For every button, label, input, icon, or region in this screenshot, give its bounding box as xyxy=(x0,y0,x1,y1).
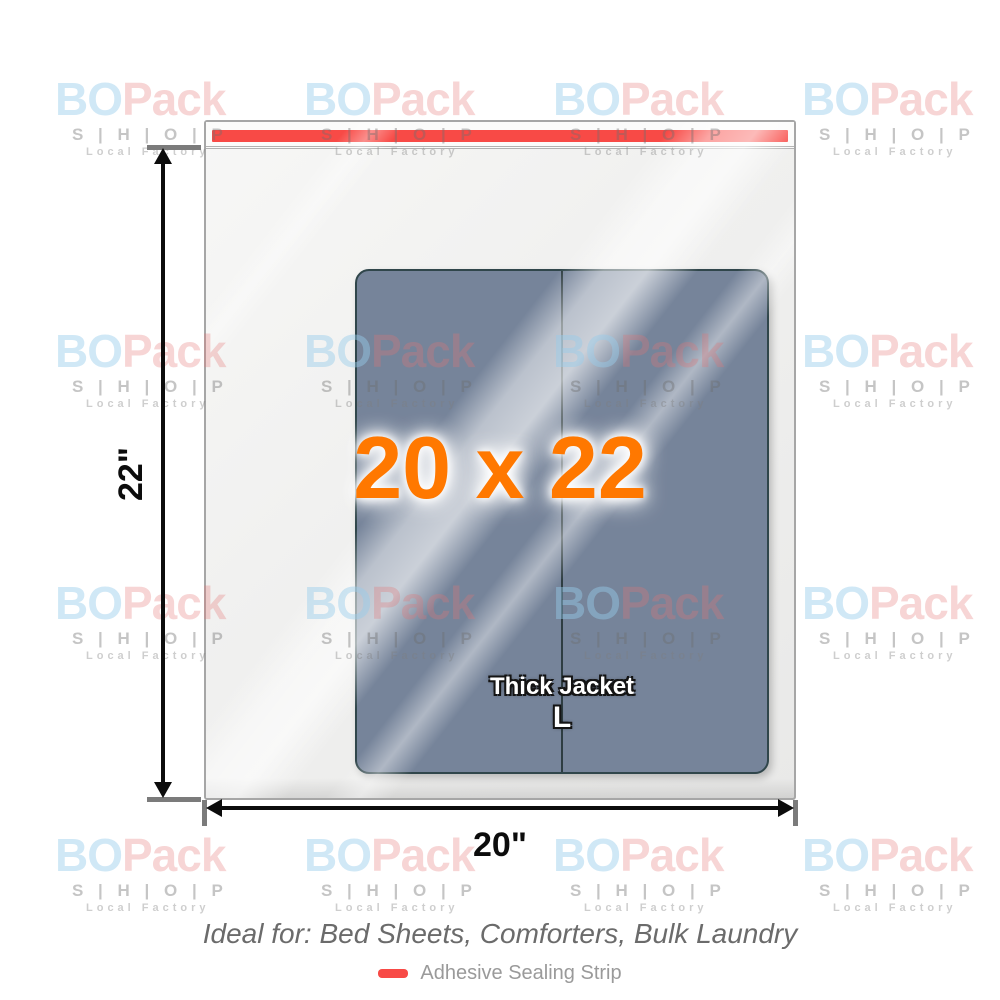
bag-size-text: 20 x 22 xyxy=(206,424,794,512)
watermark-brand-bo: BO xyxy=(55,325,122,377)
watermark-factory-line: Local Factory xyxy=(833,146,1000,158)
watermark-tile: BOPack S | H | O | P Local Factory xyxy=(802,328,1000,580)
watermark-brand-bo: BO xyxy=(55,73,122,125)
watermark-brand-pack: Pack xyxy=(869,577,972,629)
jacket-label-name: Thick Jacket xyxy=(357,673,767,701)
legend-row: Adhesive Sealing Strip xyxy=(0,962,1000,985)
watermark-brand: BOPack xyxy=(802,580,1000,626)
jacket-label-size: L xyxy=(357,701,767,736)
watermark-factory-line: Local Factory xyxy=(335,902,553,914)
watermark-brand-bo: BO xyxy=(304,73,371,125)
watermark-brand: BOPack xyxy=(553,76,802,122)
watermark-brand-pack: Pack xyxy=(122,73,225,125)
arrow-up-icon xyxy=(154,148,172,164)
watermark-brand: BOPack xyxy=(802,832,1000,878)
bag-flap xyxy=(206,122,794,149)
watermark-brand: BOPack xyxy=(55,832,304,878)
watermark-factory-line: Local Factory xyxy=(833,398,1000,410)
watermark-brand-pack: Pack xyxy=(869,829,972,881)
watermark-brand-bo: BO xyxy=(802,829,869,881)
watermark-brand-bo: BO xyxy=(55,829,122,881)
watermark-brand-pack: Pack xyxy=(122,829,225,881)
arrow-down-icon xyxy=(154,782,172,798)
watermark-brand: BOPack xyxy=(802,328,1000,374)
adhesive-sealing-strip xyxy=(212,130,788,142)
watermark-brand: BOPack xyxy=(802,76,1000,122)
watermark-shop-line: S | H | O | P xyxy=(819,629,1000,649)
legend-label: Adhesive Sealing Strip xyxy=(420,962,621,985)
ideal-for-text: Ideal for: Bed Sheets, Comforters, Bulk … xyxy=(0,918,1000,950)
watermark-brand: BOPack xyxy=(304,76,553,122)
watermark-factory-line: Local Factory xyxy=(86,902,304,914)
watermark-brand: BOPack xyxy=(55,76,304,122)
watermark-shop-line: S | H | O | P xyxy=(570,881,802,901)
watermark-brand-bo: BO xyxy=(802,577,869,629)
width-dimension-line xyxy=(221,806,779,810)
watermark-factory-line: Local Factory xyxy=(584,902,802,914)
watermark-brand-pack: Pack xyxy=(620,829,723,881)
watermark-shop-line: S | H | O | P xyxy=(819,377,1000,397)
watermark-brand-bo: BO xyxy=(553,73,620,125)
red-strip-swatch-icon xyxy=(378,969,408,978)
width-dimension-label: 20" xyxy=(400,826,600,865)
jacket-label: Thick Jacket L xyxy=(357,673,767,735)
watermark-shop-line: S | H | O | P xyxy=(819,125,1000,145)
watermark-tile: BOPack S | H | O | P Local Factory xyxy=(802,580,1000,832)
watermark-shop-line: S | H | O | P xyxy=(819,881,1000,901)
watermark-factory-line: Local Factory xyxy=(833,650,1000,662)
watermark-brand-bo: BO xyxy=(55,577,122,629)
poly-bag: Thick Jacket L 20 x 22 xyxy=(204,120,796,800)
watermark-shop-line: S | H | O | P xyxy=(321,881,553,901)
watermark-brand-bo: BO xyxy=(802,325,869,377)
watermark-brand-pack: Pack xyxy=(371,73,474,125)
watermark-tile: BOPack S | H | O | P Local Factory xyxy=(802,76,1000,328)
arrow-right-icon xyxy=(778,799,794,817)
watermark-brand-pack: Pack xyxy=(620,73,723,125)
product-dimension-diagram: BOPack S | H | O | P Local Factory BOPac… xyxy=(0,0,1000,1000)
watermark-factory-line: Local Factory xyxy=(833,902,1000,914)
folded-jacket: Thick Jacket L xyxy=(355,269,769,774)
watermark-brand-pack: Pack xyxy=(869,73,972,125)
height-dimension-line xyxy=(161,163,165,783)
arrow-left-icon xyxy=(206,799,222,817)
watermark-brand-bo: BO xyxy=(802,73,869,125)
bag-bottom-shade xyxy=(206,778,794,798)
watermark-brand-bo: BO xyxy=(304,829,371,881)
watermark-brand-pack: Pack xyxy=(869,325,972,377)
watermark-shop-line: S | H | O | P xyxy=(72,881,304,901)
height-dimension-label: 22" xyxy=(109,439,153,509)
